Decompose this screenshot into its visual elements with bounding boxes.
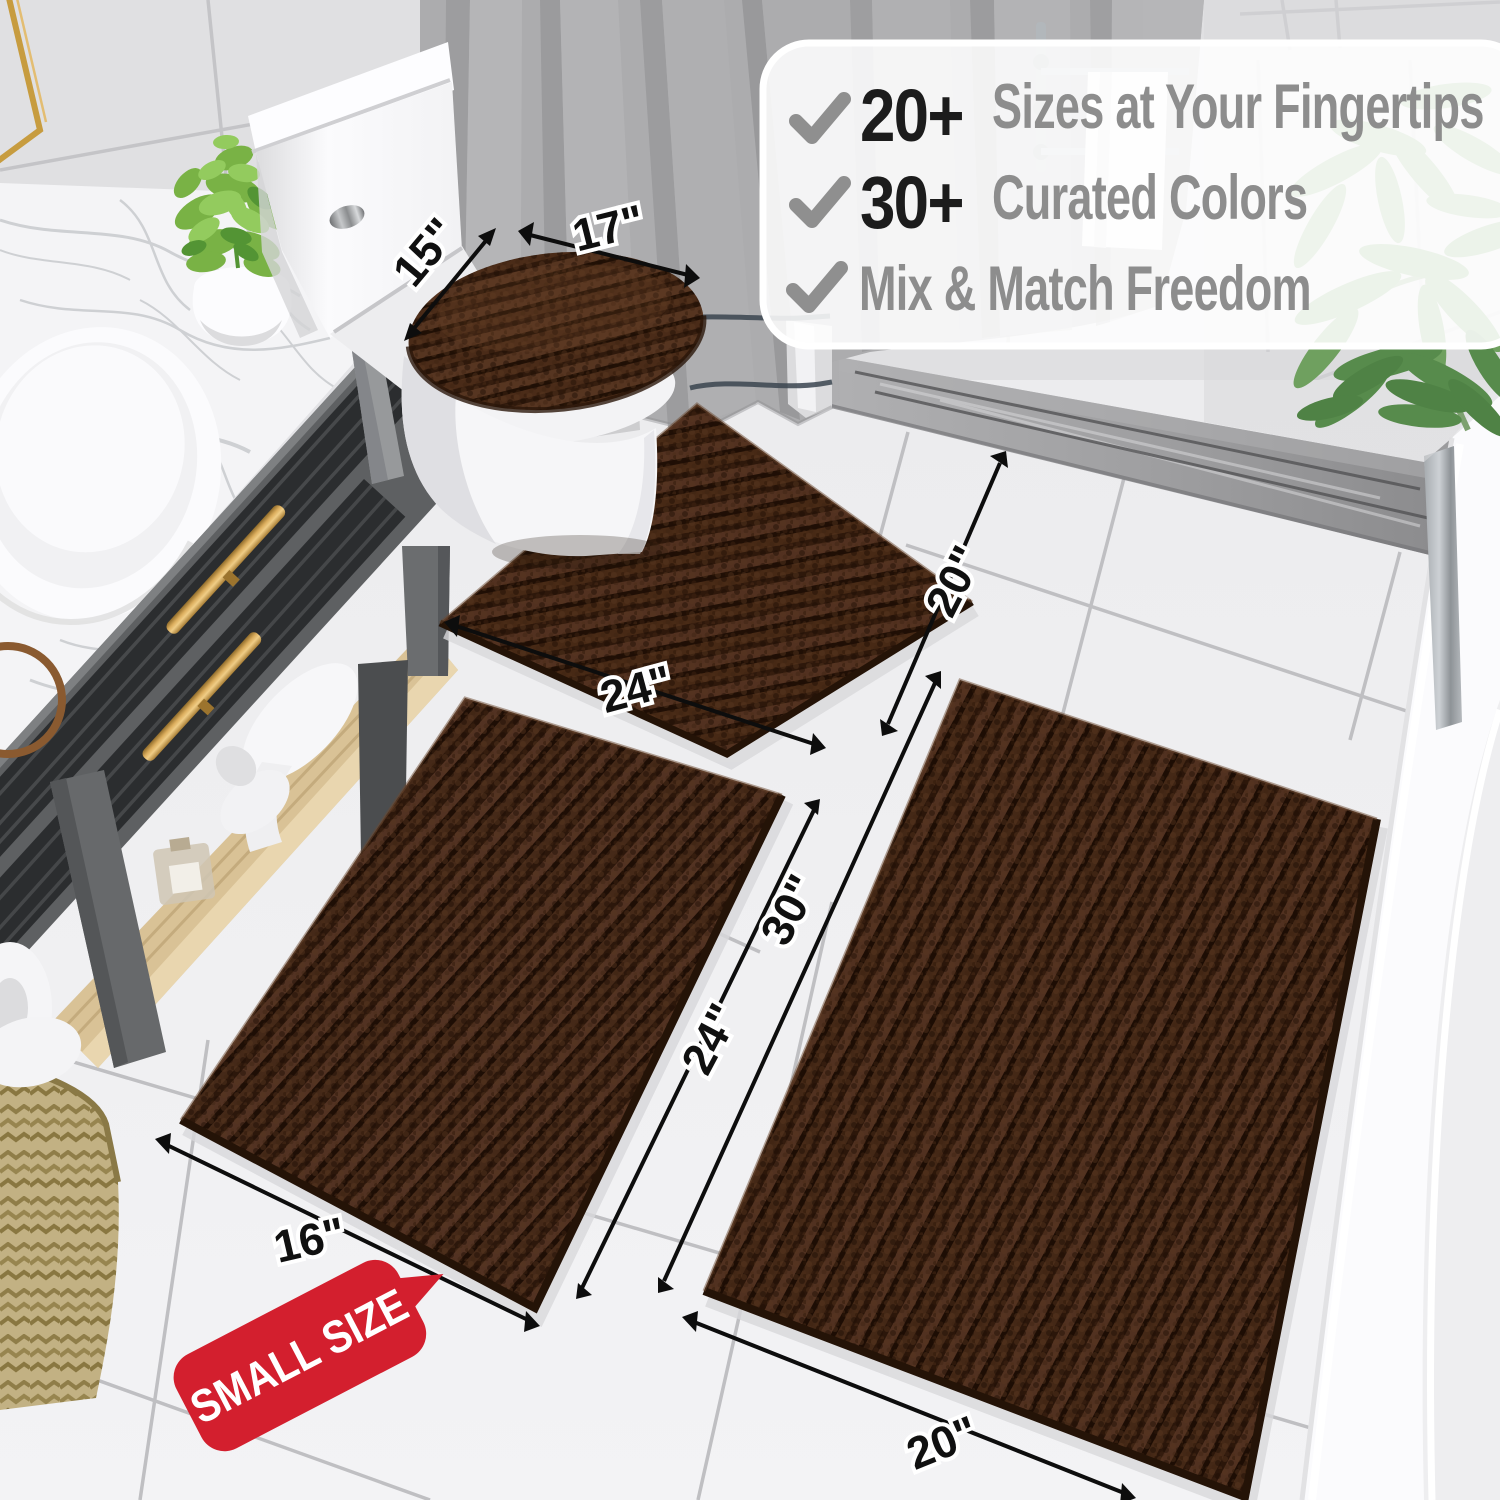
svg-text:Sizes at Your Fingertips: Sizes at Your Fingertips — [992, 70, 1484, 141]
svg-text:Mix & Match Freedom: Mix & Match Freedom — [859, 252, 1311, 323]
svg-text:20+: 20+ — [860, 75, 963, 158]
svg-text:Curated Colors: Curated Colors — [992, 161, 1307, 232]
svg-text:30+: 30+ — [860, 162, 963, 245]
